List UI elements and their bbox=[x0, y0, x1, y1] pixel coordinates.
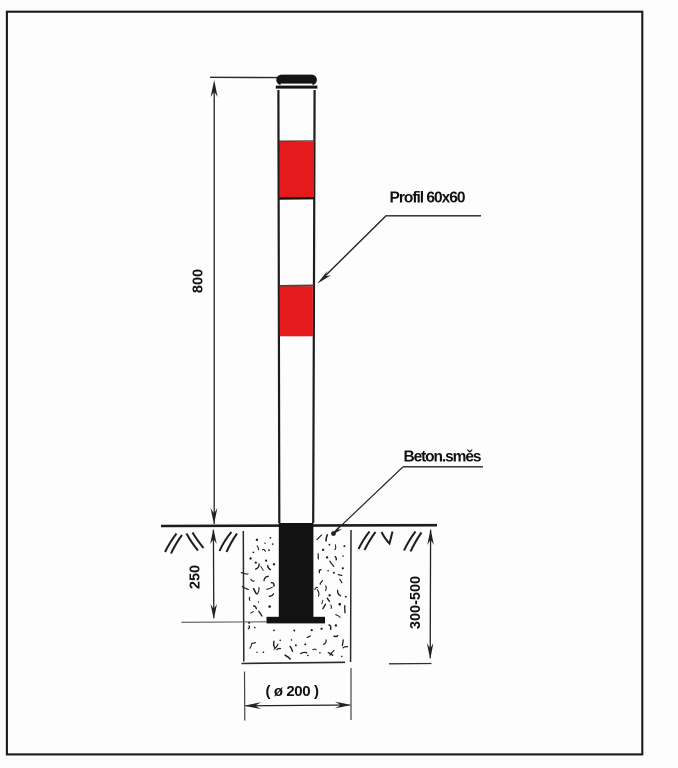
svg-text:250: 250 bbox=[188, 565, 204, 589]
svg-text:( ø 200 ): ( ø 200 ) bbox=[265, 683, 318, 700]
svg-text:Beton.směs: Beton.směs bbox=[404, 449, 481, 466]
svg-text:300-500: 300-500 bbox=[408, 576, 424, 629]
svg-text:Profil 60x60: Profil 60x60 bbox=[390, 190, 465, 207]
svg-text:800: 800 bbox=[191, 269, 207, 293]
